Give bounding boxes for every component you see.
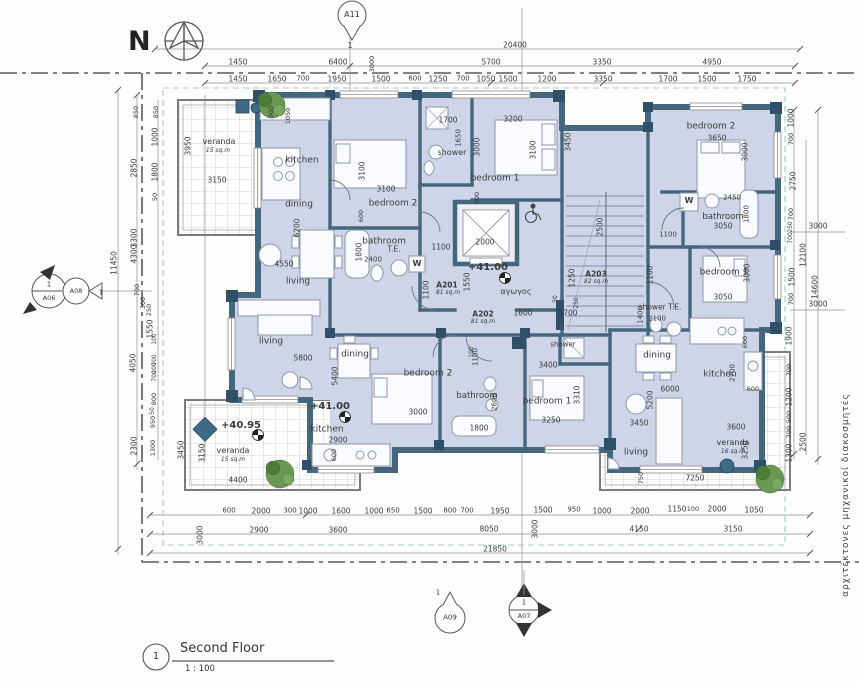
dim-label: 3000 [196,525,204,544]
dim-label: 600 [747,386,759,393]
dim-label: 600 [742,336,749,348]
room-label: shower [550,342,575,349]
room-label: living [286,278,310,287]
veranda-label: 15 sq.m [206,148,230,154]
dim-label: 700 [788,133,795,145]
dim-label: 1500 [697,75,716,83]
room-label: bedroom 1 [471,175,520,184]
dim-label: 700 [296,76,309,83]
dim-label: 1100 [659,232,677,239]
dim-label: 850 [133,106,140,118]
dim-label: 3000 [808,222,827,230]
dim-label: 3450 [629,419,648,427]
room-label: dining [643,352,671,361]
dim-label: 3100 [376,185,395,193]
dim-label: 600 [331,449,338,461]
dim-label: 500 [786,411,793,423]
dim-label: 700 [788,293,795,305]
level-value: +41.00 [468,263,508,273]
dim-label: 4050 [129,353,137,372]
room-label: bedroom 1 [523,398,572,407]
dim-label: 1100 [431,243,450,251]
dim-label: 100 [152,333,158,344]
apartment-tag: A203 [585,270,606,278]
fixture-label: T.E. [387,245,400,253]
dim-label: 3600 [726,423,745,431]
dim-label: 3050 [713,222,732,230]
dim-label: 800 [151,393,158,405]
dim-label: 250 [788,221,794,232]
dim-label: 3450 [177,440,185,459]
room-label: living [624,449,648,458]
dim-label: 300 [283,508,296,515]
dim-label: 700 [460,508,473,515]
dim-label: 750 [638,472,645,484]
dim-label: 1950 [327,75,346,83]
dim-label: 950 [150,416,157,428]
dim-label: 2500 [799,432,807,451]
apartment-tag: 81 sq.m [471,319,495,325]
dim-label: 1100 [473,348,480,366]
dim-label: 1000 [787,108,795,127]
room-label: bathroom [702,213,743,222]
dim-label: 1500 [413,507,432,515]
dim-label: 1700 [558,309,577,317]
room-label: bedroom 2 [404,370,453,379]
dim-label: 5200 [646,390,654,409]
dim-label: 1000 [298,507,317,515]
dim-label: 1800 [151,162,159,181]
dim-label: 1550 [463,272,471,291]
dim-label: 6200 [293,218,301,237]
dim-label: 700 [788,208,795,220]
veranda-label: veranda [717,439,750,447]
dim-label: 2900 [328,436,347,444]
dim-label: 3000 [408,408,427,416]
dim-label: 1300 [785,443,793,462]
dim-label: 5800 [293,354,312,362]
dim-label: 7250 [685,474,704,482]
room-label: bedroom 1 [700,269,749,278]
dim-label: 3650 [707,134,726,142]
dim-label: 650 [386,508,399,515]
dim-label: 1600 [331,507,350,515]
dim-label: 8050 [479,525,498,533]
dim-label: 4400 [228,476,247,484]
dim-label: 3000 [531,519,539,538]
dim-label: 4550 [274,260,293,268]
dim-label: 850 [153,106,160,118]
dim-label: 700 [786,364,793,376]
apartment-tag: A202 [472,310,493,318]
dim-label: 4950 [702,58,721,66]
dim-label: 50 [150,407,156,415]
apartment-tag: A201 [436,281,457,289]
annotation-layer: 2040014506400300057003350495014501650700… [0,0,859,685]
room-label: living [259,338,283,347]
dim-label: 3350 [593,75,612,83]
dim-label: 6400 [328,58,347,66]
veranda-label: veranda [217,447,250,455]
dim-label: 3250 [541,416,560,424]
dim-label: 3000 [741,142,749,161]
dim-label: 1900 [785,326,793,345]
dim-label: 12100 [799,243,807,267]
dim-label: 1200 [785,387,793,406]
dim-label: 1650 [267,75,286,83]
dim-label: 3950 [184,136,192,155]
dim-label: 1700 [658,75,677,83]
dim-label: 1800 [744,205,751,223]
dim-label: 700 [134,284,141,296]
dim-label: 2300 [130,436,138,455]
dim-label: 3600 [328,526,347,534]
dim-label: 4150 [629,525,648,533]
dim-label: 3150 [207,176,226,184]
dim-label: 250 [574,297,580,308]
dim-label: 1700 [438,116,457,124]
dim-label: 1950 [490,507,509,515]
dim-label: 1300 [150,440,157,457]
dim-label: 700 [788,232,794,243]
apartment-tag: 81 sq.m [436,290,460,296]
room-label: bedroom 2 [369,200,418,209]
dim-label: 1150 [667,505,686,513]
dim-label: 20400 [503,41,527,49]
veranda-label: 16 sq.m [721,449,745,455]
veranda-label: veranda [203,138,236,146]
dim-label: 2750 [789,171,797,190]
dim-label: 600 [474,192,481,204]
dim-label: 3310 [573,385,581,404]
room-label: αγωγος [500,288,531,296]
room-label: shower T.E. [639,303,682,311]
dim-label: 950 [567,507,580,514]
dim-label: 1500 [533,506,552,514]
floor-plan-sheet: N A11 1 1 A06 A08 1 1 A09 1 A07 1 Second… [0,0,859,685]
apartment-tag: 82 sq.m [584,279,608,285]
dim-label: 2000 [475,238,494,246]
room-label: kitchen [703,371,736,380]
dim-label: 700 [456,76,469,83]
dim-label: 600 [408,76,421,83]
room-label: kitchen [285,157,318,166]
dim-label: 2500 [596,217,604,236]
dim-label: 5400 [331,366,339,385]
dim-label: 3150 [723,525,742,533]
room-label: kitchen [310,426,343,435]
level-value: +41.00 [310,402,350,412]
dim-label: 2450 [723,195,741,202]
dim-label: 1750 [737,75,756,83]
dim-label: 1100 [646,265,654,284]
dim-label: 2000 [251,507,270,515]
dim-label: 4300 [130,244,138,263]
dim-label: 1800 [469,424,488,432]
dim-label: 3000 [808,300,827,308]
dim-label: 700 [786,426,793,438]
dim-label: 3400 [538,361,557,369]
dim-label: 600 [358,210,365,222]
dim-label: 3000 [473,137,481,156]
dim-label: 1250 [428,75,447,83]
dim-label: 1250 [568,268,576,287]
dim-label: 100 [687,506,699,513]
dim-label: 1600 [513,309,532,317]
dim-label: 2000 [630,507,649,515]
dim-label: 1050 [476,75,495,83]
dim-label: 50 [553,295,559,303]
dim-label: 1100 [422,280,430,299]
dim-label: 1000 [592,507,611,515]
dim-label: 3050 [713,293,732,301]
dim-label: 2850 [130,158,138,177]
dim-label: 1500 [498,75,517,83]
dim-label: 3100 [529,140,537,159]
room-label: dining [341,351,369,360]
room-label: dining [285,201,313,210]
dim-label: 250 [146,304,153,316]
room-label: bedroom 2 [687,123,736,132]
dim-label: 3150 [198,443,206,462]
dim-label: 3450 [564,132,572,151]
dim-label: 1450 [228,58,247,66]
dim-label: 600 [222,508,235,515]
dim-label: 3100 [358,161,366,180]
dim-label: 700 [152,370,158,381]
veranda-label: 15 sq.m [221,457,245,463]
fixture-label: W [685,197,694,205]
dim-label: 1200 [537,75,556,83]
room-label: shower [438,149,467,157]
dim-label: 5700 [481,58,500,66]
dim-label: 1050 [744,506,763,514]
dim-label: 1650 [456,129,463,147]
dim-label: 11450 [110,251,118,275]
dim-label: 1000 [364,507,383,515]
dim-label: 50 [152,193,159,201]
dim-label: 2400 [364,257,382,264]
dim-label: 1050 [285,108,292,125]
dim-label: 1000 [151,127,159,146]
dim-label: 900 [268,106,275,118]
fixture-label: W [413,260,422,268]
dim-label: 1500 [371,75,390,83]
dim-label: 800 [443,508,456,515]
dim-label: 3000 [369,56,376,73]
dim-label: 6000 [660,385,679,393]
level-value: +40.95 [221,421,261,431]
dim-label: 1450 [228,75,247,83]
dim-label: 1500 [788,267,796,286]
room-label: bathroom [456,392,497,401]
dim-label: 3200 [503,115,522,123]
dim-label: 3350 [592,58,611,66]
dim-label: 2100 [648,316,666,323]
dim-label: 21850 [483,545,507,553]
dim-label: 2000 [707,505,726,513]
dim-label: 14600 [811,275,819,299]
dim-label: 2900 [249,526,268,534]
